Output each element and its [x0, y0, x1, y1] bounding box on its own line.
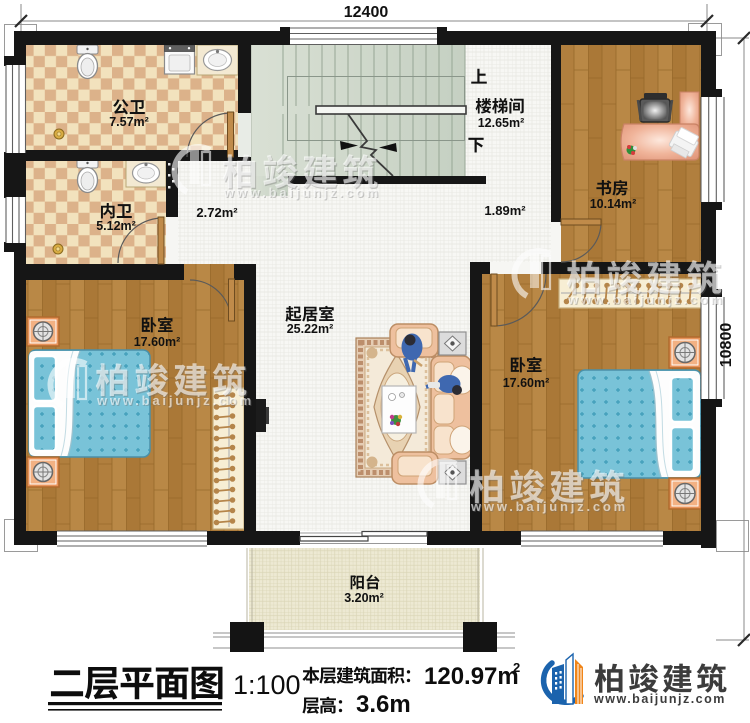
svg-text:3.20m²: 3.20m²: [344, 591, 384, 605]
svg-text:www.baijunjz.com: www.baijunjz.com: [223, 185, 381, 200]
svg-text:10.14m²: 10.14m²: [590, 197, 637, 211]
svg-text:12400: 12400: [344, 4, 389, 21]
svg-text:12.65m²: 12.65m²: [478, 116, 525, 130]
svg-text:7.57m²: 7.57m²: [109, 115, 149, 129]
svg-text:www.baijunjz.com: www.baijunjz.com: [593, 692, 726, 706]
svg-text:10800: 10800: [718, 323, 735, 368]
svg-text:120.97m: 120.97m: [424, 663, 519, 690]
svg-text:17.60m²: 17.60m²: [134, 335, 181, 349]
svg-text:1:100: 1:100: [233, 670, 301, 700]
svg-text:2: 2: [513, 660, 520, 675]
svg-text:25.22m²: 25.22m²: [287, 322, 334, 336]
svg-text:17.60m²: 17.60m²: [503, 376, 550, 390]
svg-text:3.6m: 3.6m: [356, 691, 411, 718]
svg-text:www.baijunjz.com: www.baijunjz.com: [567, 292, 725, 307]
svg-text:1.89m²: 1.89m²: [484, 203, 526, 218]
svg-text:www.baijunjz.com: www.baijunjz.com: [96, 393, 254, 408]
svg-text:5.12m²: 5.12m²: [96, 219, 136, 233]
svg-text:2.72m²: 2.72m²: [196, 205, 238, 220]
svg-text:www.baijunjz.com: www.baijunjz.com: [470, 499, 628, 514]
